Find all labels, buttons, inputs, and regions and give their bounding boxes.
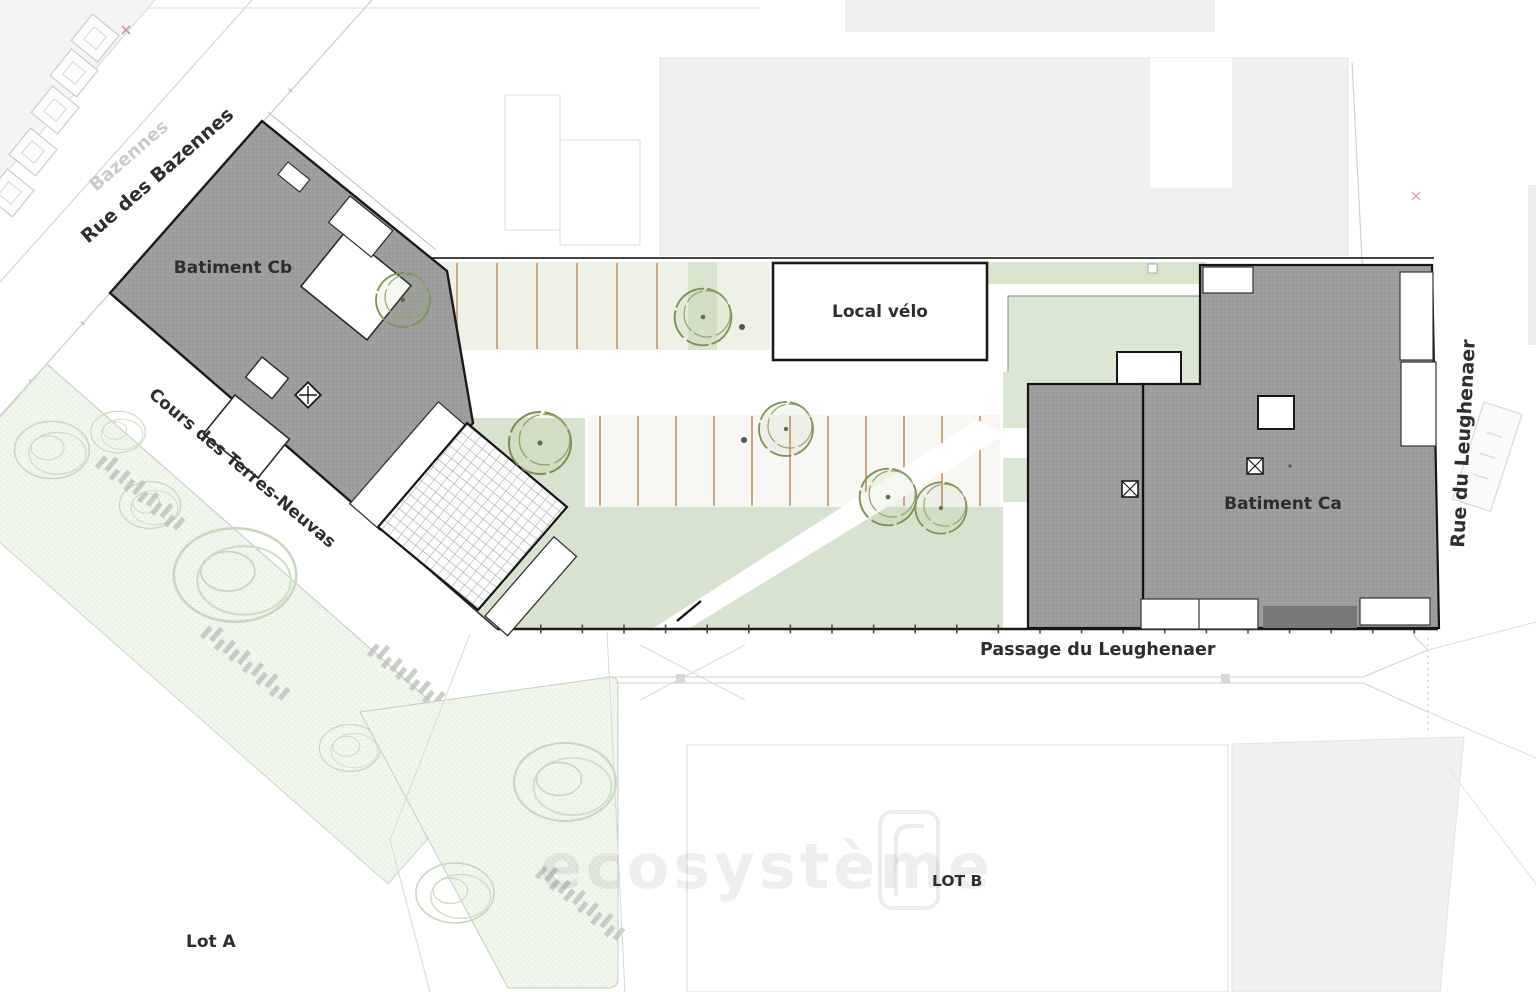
tree-icon [915, 482, 966, 533]
site-plan-drawing: ecosystème Bazennes Rue des Bazennes Cou… [0, 0, 1536, 992]
courtyard-structure [1117, 352, 1181, 386]
label-lot-a: Lot A [186, 932, 237, 952]
label-local-velo: Local vélo [832, 302, 928, 322]
label-building-cb: Batiment Cb [174, 258, 292, 278]
label-street-passage-du-leughenaer: Passage du Leughenaer [980, 640, 1216, 660]
tree-icon [759, 402, 813, 456]
site-plan: ecosystème Bazennes Rue des Bazennes Cou… [0, 0, 1536, 992]
skylight [1258, 396, 1294, 429]
bike-rack-icon [741, 437, 747, 443]
tree-icon [675, 289, 732, 346]
watermark-text: ecosystème [540, 830, 994, 903]
tree-icon [860, 469, 917, 526]
roof-access-icon [1247, 458, 1263, 474]
label-building-ca: Batiment Ca [1224, 494, 1342, 514]
accessible-parking-icon [739, 324, 745, 330]
label-lot-b: LOT B [932, 872, 982, 890]
tree-icon [376, 273, 430, 327]
roof-access-icon [1122, 481, 1138, 497]
tree-icon [509, 412, 571, 474]
building-ca-west-wing [1028, 384, 1143, 628]
